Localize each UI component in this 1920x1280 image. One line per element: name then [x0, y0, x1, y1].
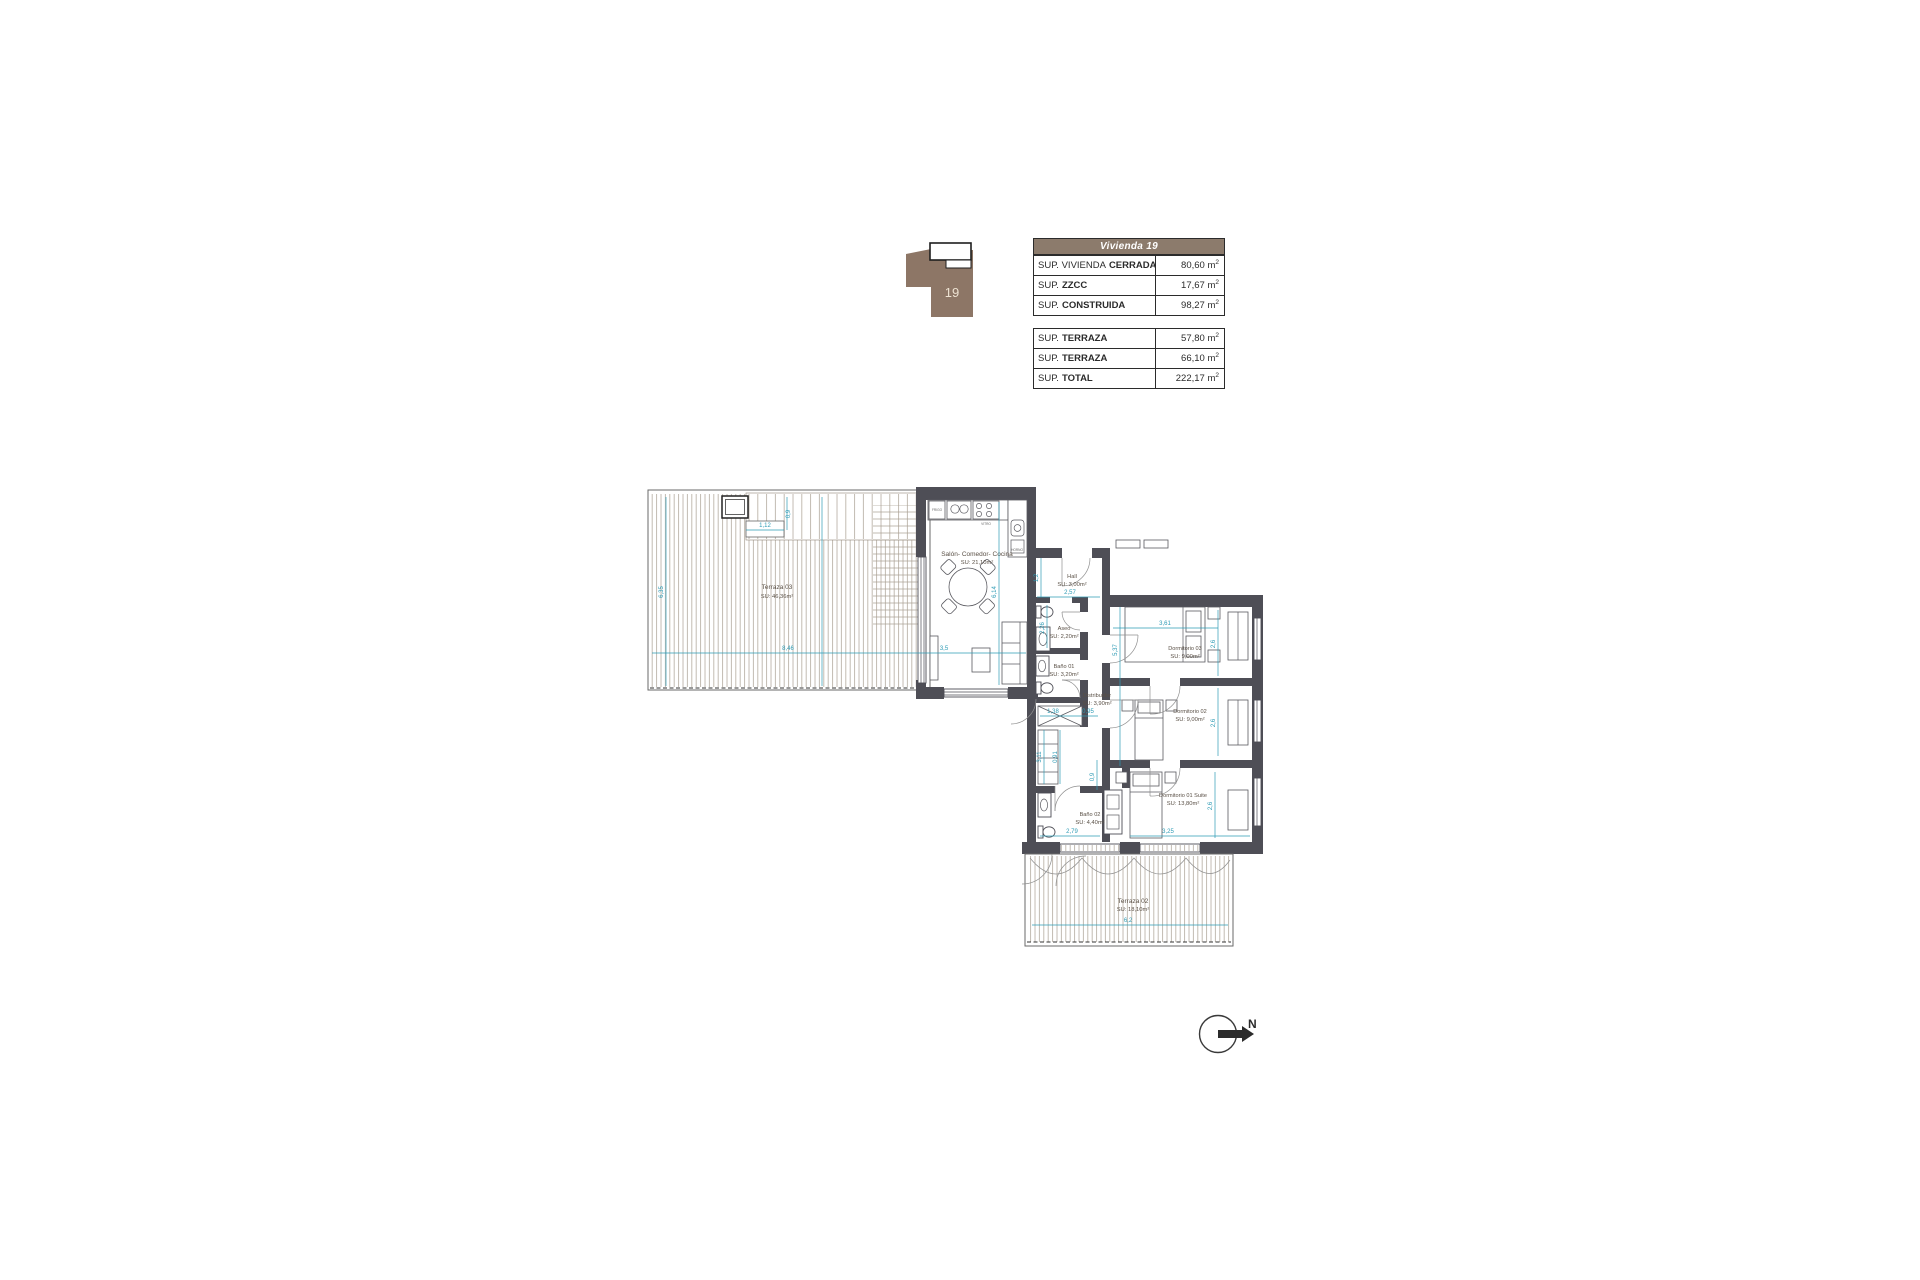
- room-label: Aseo: [1058, 626, 1071, 632]
- room-label: Terraza 03: [762, 584, 793, 591]
- room-area-label: SU: 46,36m²: [761, 594, 794, 600]
- toilet-tank: [1036, 606, 1041, 618]
- room-label: Distribuidor: [1083, 693, 1111, 699]
- dim-label: 0,9: [1090, 772, 1096, 781]
- dim-label: 2,6: [1211, 718, 1217, 727]
- summary-table: Vivienda 19 SUP. VIVIENDACERRADA 80,60 m…: [1033, 238, 1225, 316]
- dim-label: 2,79: [1066, 829, 1078, 835]
- room-area-label: SU: 9,00m²: [1170, 654, 1199, 660]
- dim-label: 3,25: [1162, 829, 1174, 835]
- room-label: Dormitorio 03: [1168, 646, 1202, 652]
- chair: [940, 559, 957, 576]
- table-row: SUP.TERRAZA 57,80 m2: [1034, 329, 1225, 349]
- oven-label: HORNO: [1011, 548, 1023, 552]
- pergola-louvres: [873, 505, 918, 628]
- dim-label: 5,37: [1113, 644, 1119, 656]
- room-area-label: SU: 4,40m²: [1075, 820, 1104, 826]
- table-row: SUP.ZZCC 17,67 m2: [1034, 276, 1225, 296]
- key-plan: 19: [893, 236, 997, 330]
- coffee-table: [972, 648, 990, 672]
- toilet: [1043, 827, 1055, 837]
- room-label: Terraza 02: [1118, 898, 1149, 905]
- row-value: 222,17 m: [1176, 374, 1216, 385]
- room-area-label: SU: 3,00m²: [1057, 582, 1086, 588]
- terrace-03: Terraza 03 SU: 46,36m²: [648, 490, 930, 690]
- room-area-label: SU: 3,20m²: [1049, 672, 1078, 678]
- row-value: 98,27 m: [1181, 301, 1215, 312]
- room-area-label: SU: 2,20m²: [1049, 634, 1078, 640]
- dim-label: 2,57: [1064, 590, 1076, 596]
- key-plan-unit-number: 19: [945, 285, 959, 300]
- dormitorio-01-suite: Dormitorio 01 Suite SU: 13,80m²: [1116, 768, 1248, 838]
- floor-plan-sheet: 19 Vivienda 19 SUP. VIVIENDACERRADA 80,6…: [0, 0, 1920, 1280]
- key-plan-neighbor-block: [930, 243, 971, 260]
- bano-01: Baño 01 SU: 3,20m²: [1036, 656, 1080, 698]
- dim-label: 1,2: [1034, 573, 1040, 582]
- row-value: 57,80 m: [1181, 334, 1215, 345]
- nightstand: [1116, 772, 1127, 783]
- table-row: SUP.TERRAZA 66,10 m2: [1034, 349, 1225, 369]
- cooktop: [973, 501, 999, 519]
- salon-comedor-cocina: FRIGO VITRO HORNO: [928, 500, 1027, 684]
- pillow: [1186, 611, 1201, 632]
- dresser: [1228, 790, 1248, 830]
- row-value-exp: 2: [1215, 372, 1219, 379]
- dim-label: 3,61: [1159, 621, 1171, 627]
- dim-label: 6,2: [1124, 918, 1133, 924]
- row-value-exp: 2: [1215, 299, 1219, 306]
- room-label: Baño 01: [1054, 664, 1075, 670]
- dim-label: 0,95: [1082, 709, 1094, 715]
- row-value: 66,10 m: [1181, 354, 1215, 365]
- room-area-label: SU: 21,10m²: [961, 560, 994, 566]
- entry-planter: [1144, 540, 1168, 548]
- toilet-tank: [1036, 682, 1041, 694]
- room-label: Hall: [1067, 574, 1077, 580]
- washbasin-counter: [1038, 793, 1051, 817]
- room-label: Baño 02: [1080, 812, 1101, 818]
- table-row: SUP. VIVIENDACERRADA 80,60 m2: [1034, 256, 1225, 276]
- terrace-02: Terraza 02 SU: 18,10m²: [1022, 854, 1233, 946]
- summary-table-header: Vivienda 19: [1033, 238, 1225, 255]
- row-label-bold: ZZCC: [1062, 280, 1087, 291]
- table-row: SUP.TOTAL 222,17 m2: [1034, 369, 1225, 389]
- room-area-label: SU: 9,00m²: [1175, 717, 1204, 723]
- dim-label: 6,35: [659, 586, 665, 598]
- terraces-table: SUP.TERRAZA 57,80 m2 SUP.TERRAZA 66,10 m…: [1033, 328, 1225, 389]
- row-value-exp: 2: [1215, 332, 1219, 339]
- distribuidor: Distribuidor SU: 3,90m²: [1011, 693, 1112, 784]
- row-value-exp: 2: [1215, 352, 1219, 359]
- nightstand: [1165, 772, 1176, 783]
- row-value: 17,67 m: [1181, 281, 1215, 292]
- row-label-bold: TOTAL: [1062, 373, 1093, 384]
- dining-table: [949, 568, 987, 606]
- entry-mat: [1116, 540, 1140, 548]
- tv-unit: [930, 636, 938, 680]
- row-label-bold: CONSTRUIDA: [1062, 300, 1125, 311]
- dim-label: 8,46: [782, 646, 794, 652]
- dim-label: 2,6: [1211, 639, 1217, 648]
- row-value: 80,60 m: [1181, 261, 1215, 272]
- row-value-exp: 2: [1215, 259, 1219, 266]
- row-label: SUP.: [1038, 333, 1059, 344]
- fridge-label: FRIGO: [932, 508, 943, 512]
- room-area-label: SU: 18,10m²: [1117, 907, 1150, 913]
- hob-label: VITRO: [981, 522, 991, 526]
- dim-label: 6,14: [992, 586, 998, 598]
- dim-label: 1,12: [759, 523, 771, 529]
- row-value-exp: 2: [1215, 279, 1219, 286]
- room-area-label: SU: 13,80m²: [1167, 801, 1200, 807]
- room-label: Dormitorio 01 Suite: [1159, 793, 1207, 799]
- dormitorio-03: Dormitorio 03 SU: 9,00m²: [1110, 607, 1248, 663]
- floor-plan: Terraza 03 SU: 46,36m²: [630, 478, 1290, 960]
- row-label: SUP.: [1038, 280, 1059, 291]
- row-label: SUP. VIVIENDA: [1038, 260, 1106, 271]
- dim-label: 1,38: [1047, 709, 1059, 715]
- dim-label: 0,9: [786, 509, 792, 518]
- washbasin-counter: [1036, 656, 1049, 676]
- dim-label: 2,26: [1040, 622, 1046, 634]
- room-label: Dormitorio 02: [1173, 709, 1207, 715]
- dim-label: 0,91: [1053, 751, 1059, 763]
- row-label-bold: TERRAZA: [1062, 333, 1107, 344]
- dim-label: 3,11: [1037, 751, 1043, 763]
- nightstand: [1122, 700, 1133, 711]
- north-compass: N: [1190, 1008, 1280, 1068]
- row-label-bold: TERRAZA: [1062, 353, 1107, 364]
- row-label: SUP.: [1038, 300, 1059, 311]
- north-label: N: [1248, 1017, 1257, 1031]
- room-label: Salón- Comedor- Cocina: [941, 551, 1013, 558]
- pillow: [1133, 774, 1159, 786]
- pillow: [1138, 702, 1160, 713]
- key-plan-neighbor-block-small: [946, 260, 971, 268]
- row-label: SUP.: [1038, 353, 1059, 364]
- dim-label: 2,6: [1208, 801, 1214, 810]
- table-row: SUP.CONSTRUIDA 98,27 m2: [1034, 296, 1225, 316]
- toilet: [1041, 683, 1053, 693]
- row-label: SUP.: [1038, 373, 1059, 384]
- hall: Hall SU: 3,00m²: [1057, 540, 1168, 588]
- row-label-bold: CERRADA: [1109, 260, 1156, 271]
- bano-02: Baño 02 SU: 4,40m²: [1038, 786, 1122, 838]
- dim-label: 3,5: [940, 646, 949, 652]
- dormitorio-02: Dormitorio 02 SU: 9,00m²: [1110, 686, 1248, 760]
- room-area-label: SU: 3,90m²: [1082, 701, 1111, 707]
